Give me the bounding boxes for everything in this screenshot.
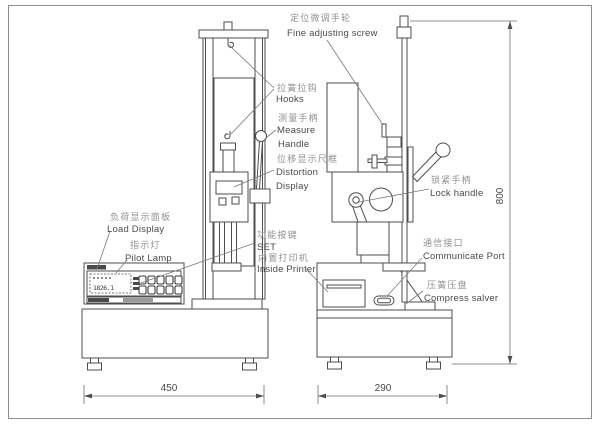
- load-display-digits: 1826.1: [93, 284, 114, 292]
- label-communicate-port-zh: 通信接口: [423, 237, 464, 248]
- console-brand-mark: [87, 265, 106, 270]
- distortion-display-screen: [216, 181, 242, 194]
- left-base: [82, 309, 268, 358]
- rod-collar: [397, 27, 411, 38]
- printer-slot: [327, 285, 361, 288]
- lead-screw-rod: [402, 38, 407, 263]
- label-communicate-port-en: Communicate Port: [423, 251, 505, 262]
- label-pilot-lamp-en: Pilot Lamp: [125, 253, 172, 264]
- spring-holder-body: [223, 150, 234, 172]
- label-distortion-en2: Display: [276, 181, 309, 192]
- measure-handle-bracket: [250, 189, 270, 203]
- measure-handle-knob: [256, 131, 267, 142]
- label-measure-handle-en1: Measure: [277, 125, 315, 136]
- label-load-display-en: Load Display: [107, 224, 164, 235]
- communicate-port-connector: [374, 296, 394, 305]
- label-distortion-zh: 位移显示尺框: [277, 153, 338, 164]
- top-crossbeam: [199, 30, 268, 38]
- label-set-en: SET: [257, 242, 276, 253]
- adjust-knob-head: [372, 155, 377, 168]
- lock-handle-ball: [436, 143, 450, 157]
- compress-salver-plate: [383, 263, 425, 271]
- label-lock-handle-zh: 锁紧手柄: [431, 174, 472, 185]
- top-knob: [224, 22, 232, 30]
- label-compress-salver-en: Compress salver: [424, 293, 498, 304]
- spring-holder-cap: [221, 143, 236, 150]
- label-inside-printer-zh: 内置打印机: [258, 252, 309, 263]
- display-button-right: [232, 197, 239, 204]
- label-inside-printer-en: Inside Printer: [257, 264, 316, 275]
- side-piston-upper: [357, 222, 389, 255]
- label-measure-handle-zh: 测量手柄: [278, 112, 319, 123]
- strip-mark-left: [88, 298, 109, 302]
- rod-top-cap: [400, 16, 408, 27]
- column-flange: [192, 299, 262, 309]
- label-fine-adjusting-en: Fine adjusting screw: [287, 28, 378, 39]
- fine-screw-tip: [382, 124, 386, 137]
- dim-450-text: 450: [161, 383, 178, 394]
- technical-drawing: 1826.1: [0, 0, 600, 424]
- lock-bracket: [408, 147, 413, 222]
- label-hooks-zh: 拉簧拉钩: [277, 82, 318, 93]
- label-load-display-zh: 负荷显示面板: [110, 211, 171, 222]
- dim-290-text: 290: [375, 383, 392, 394]
- label-pilot-lamp-zh: 指示灯: [130, 239, 161, 250]
- inside-printer-box: [323, 280, 365, 307]
- strip-mark-center: [123, 298, 153, 302]
- right-base: [317, 310, 452, 357]
- dim-800-text: 800: [495, 187, 506, 204]
- label-fine-adjusting-zh: 定位微调手轮: [290, 12, 351, 23]
- label-lock-handle-en: Lock handle: [430, 188, 483, 199]
- label-compress-salver-zh: 压簧压盘: [427, 279, 468, 290]
- drawing-canvas: 1826.1: [0, 0, 600, 424]
- label-distortion-en1: Distortion: [276, 167, 318, 178]
- display-button-left: [219, 198, 226, 205]
- label-inside-printer: 内置打印机 Inside Printer: [257, 252, 316, 275]
- label-set-zh: 功能按键: [257, 229, 298, 240]
- side-piston-lower: [361, 255, 389, 263]
- load-display-panel: 1826.1: [84, 263, 184, 304]
- label-measure-handle-en2: Handle: [278, 139, 309, 150]
- label-hooks-en: Hooks: [276, 94, 304, 105]
- distortion-display-box: [210, 172, 248, 222]
- lower-platen: [212, 263, 241, 271]
